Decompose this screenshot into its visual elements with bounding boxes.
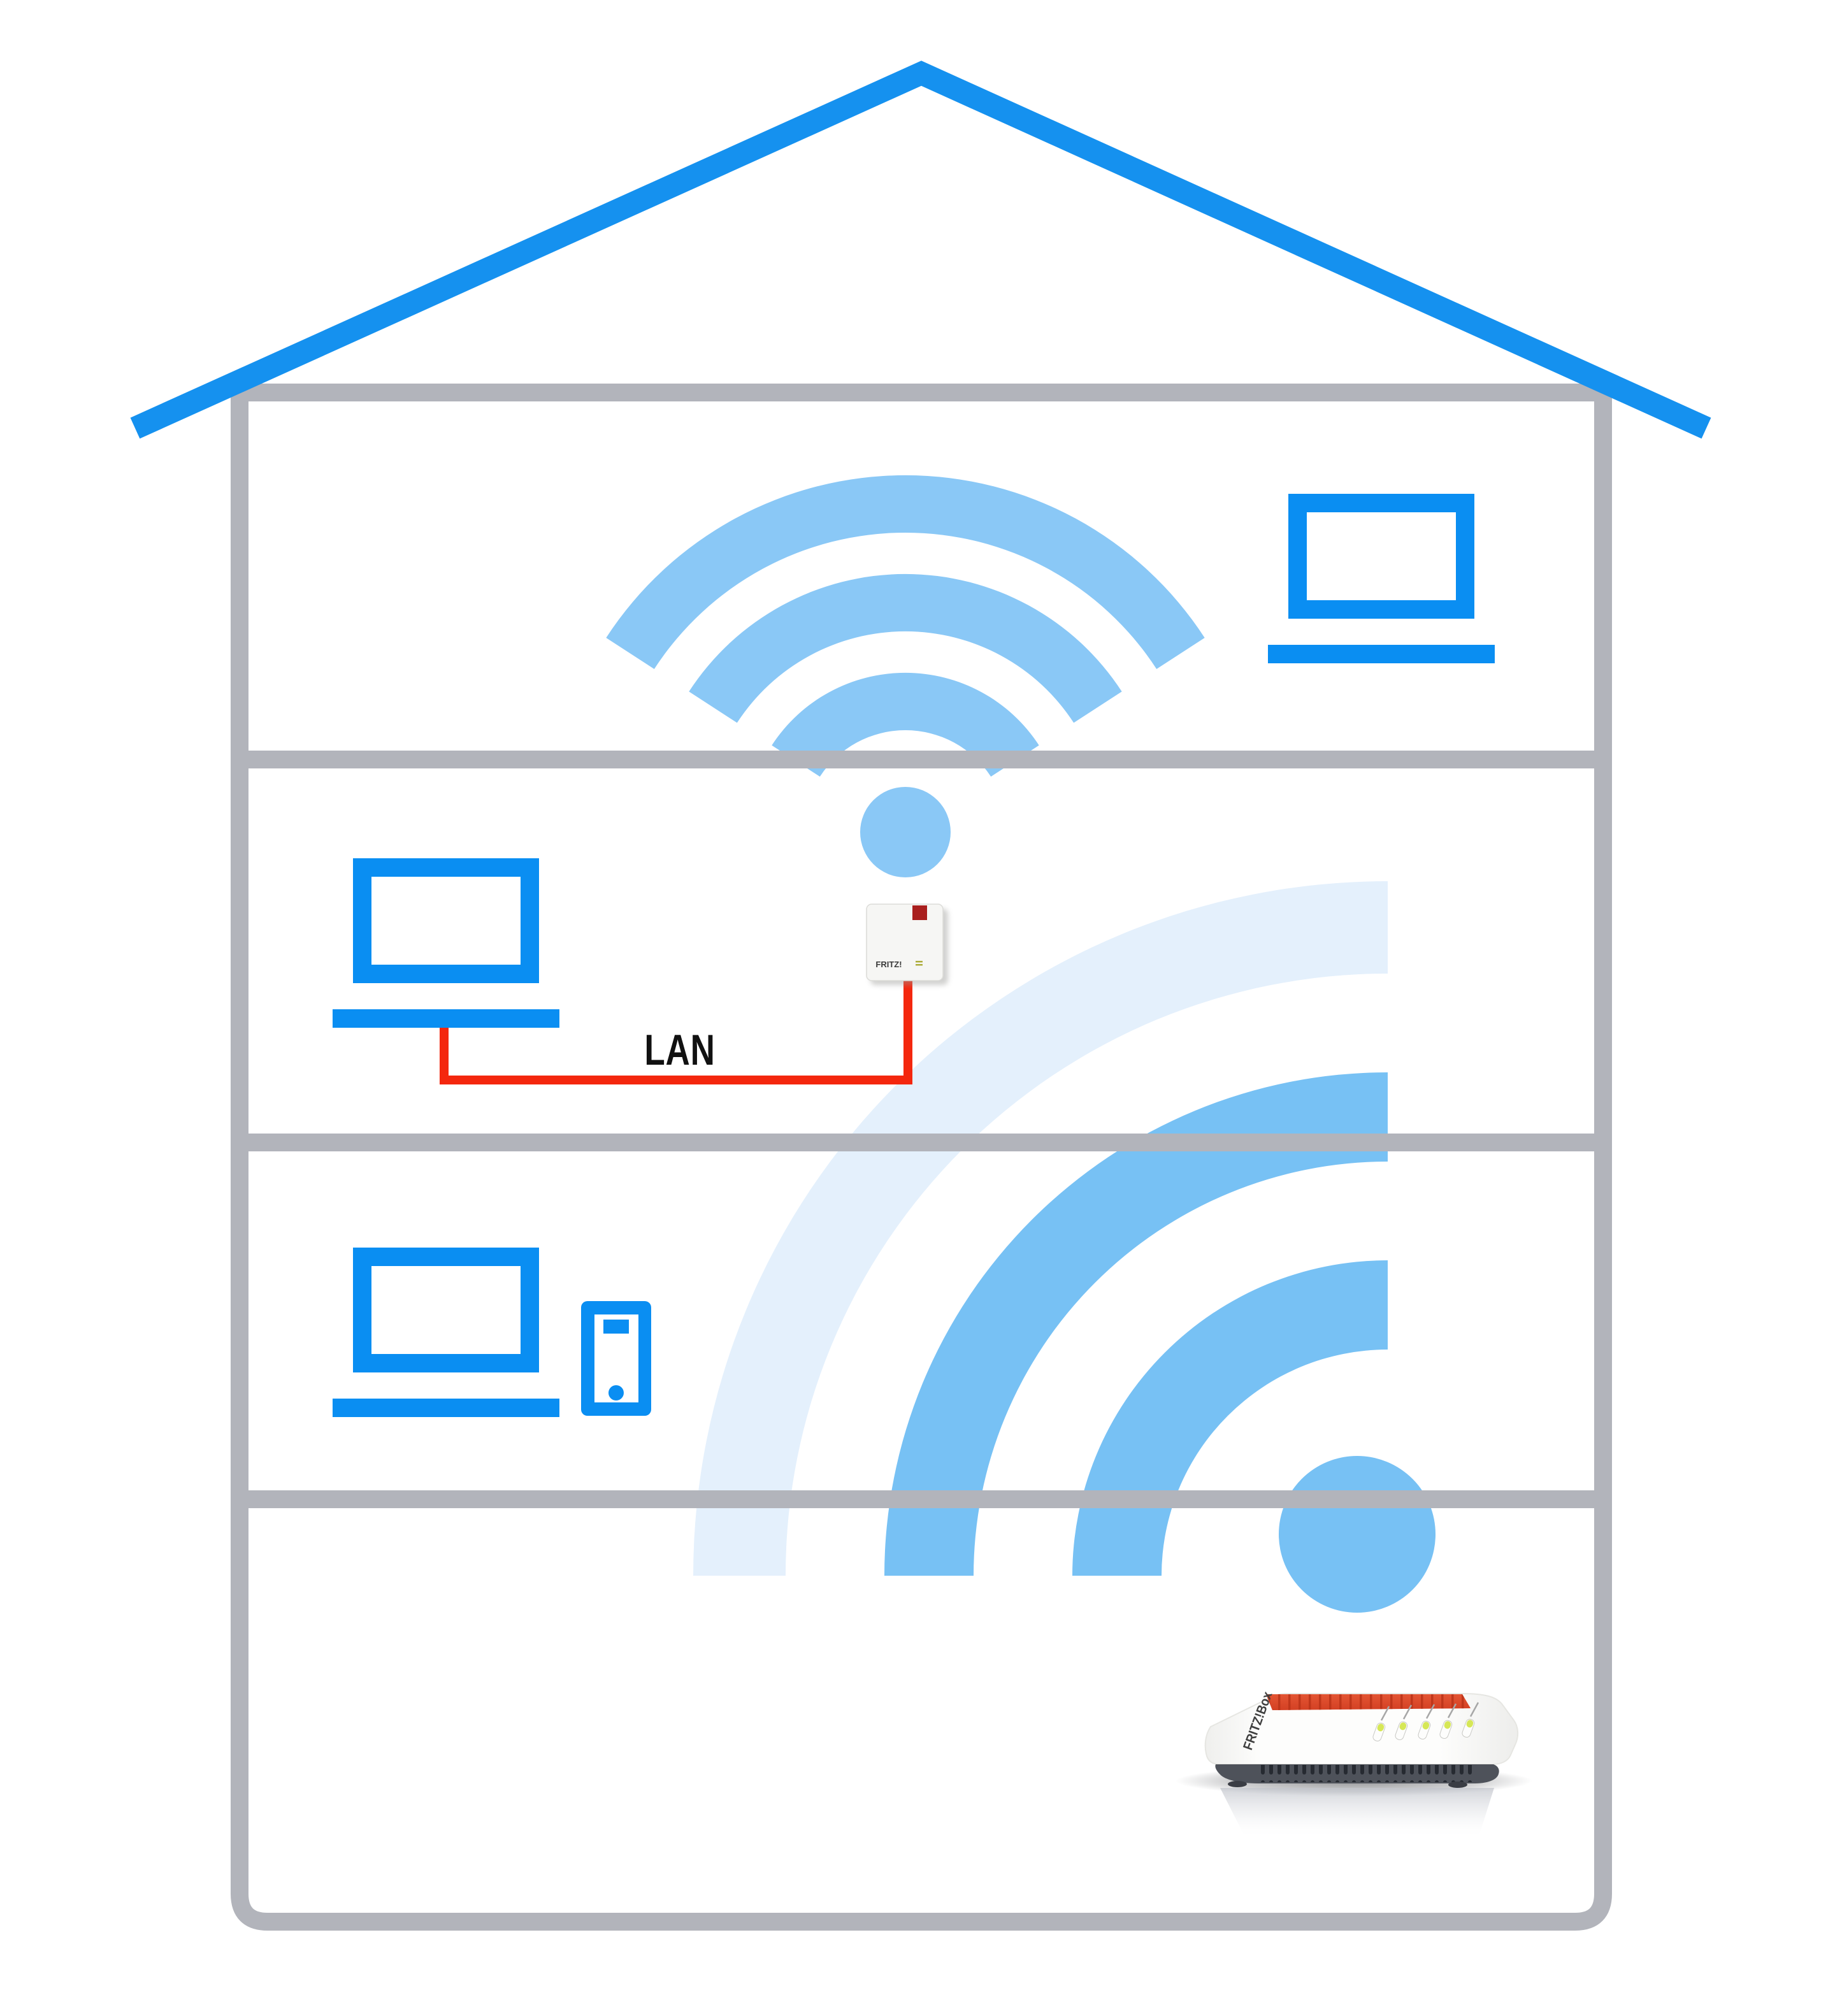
- router-vents: [1256, 1765, 1473, 1782]
- repeater-led: [912, 905, 927, 920]
- laptop-icon-second-floor: [333, 858, 559, 1028]
- laptop-icon-third-floor: [333, 1248, 559, 1417]
- router-red-stripe: [1266, 1693, 1471, 1711]
- ceiling-slab: [231, 384, 1612, 401]
- floor-slab-1: [231, 751, 1612, 768]
- router-device: FRITZ!Box: [1176, 1690, 1532, 1838]
- smartphone-icon: [581, 1301, 651, 1416]
- laptop-icon-top-floor: [1268, 494, 1495, 663]
- lan-label: LAN: [644, 1026, 715, 1074]
- router-reflection: [1220, 1788, 1494, 1838]
- router-foot-right: [1448, 1782, 1467, 1788]
- router-wifi-dot: [1279, 1456, 1436, 1613]
- floor-slab-3: [231, 1490, 1612, 1508]
- router-foot-left: [1228, 1781, 1247, 1787]
- repeater-brand-label: FRITZ!: [875, 960, 902, 969]
- roof: [135, 73, 1706, 428]
- router-wifi-signal-icon: [884, 1072, 1436, 1613]
- network-diagram: LAN FRITZ! FRITZ!Box: [0, 0, 1835, 2016]
- repeater-wifi-signal-icon: [606, 475, 1204, 877]
- repeater-wifi-arc-outer: [606, 475, 1204, 669]
- floor-slab-2: [231, 1134, 1612, 1151]
- repeater-wifi-dot: [860, 787, 951, 877]
- repeater-body: [867, 904, 943, 981]
- diagram-svg: LAN FRITZ! FRITZ!Box: [0, 0, 1835, 2016]
- repeater-device: FRITZ!: [867, 904, 948, 985]
